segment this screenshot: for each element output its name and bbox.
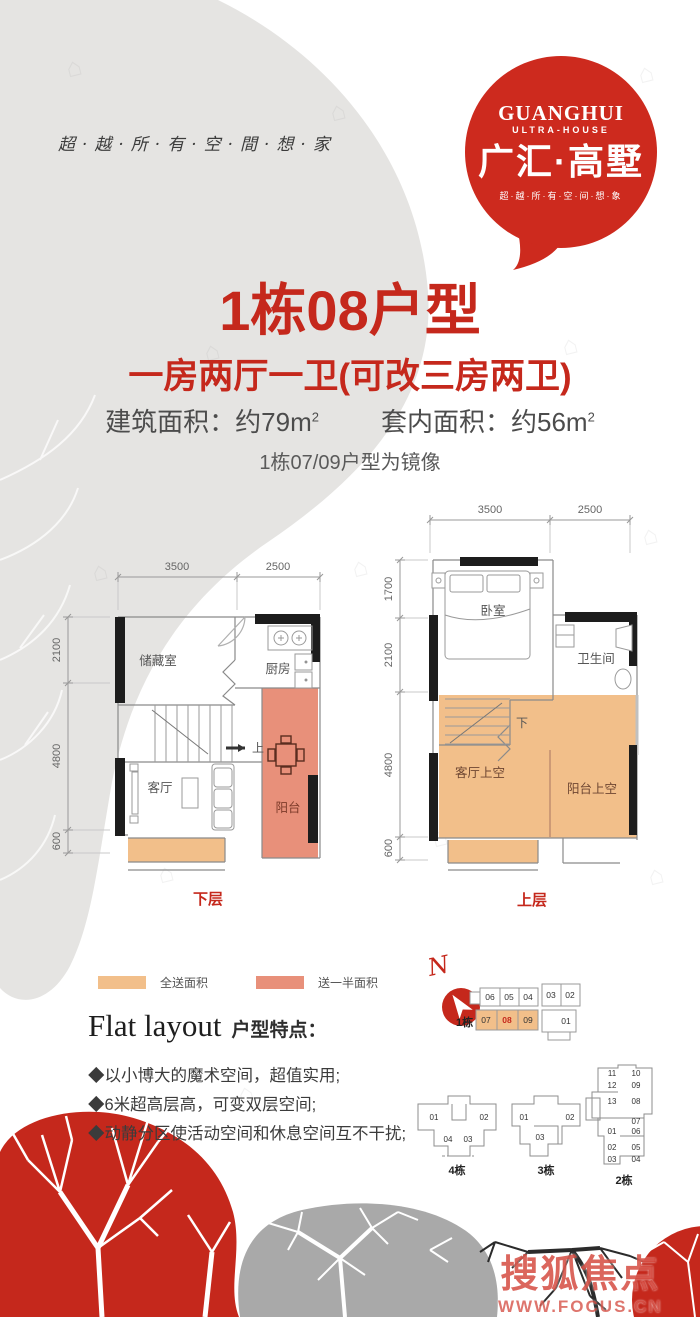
upper-dim-1700: 1700 (383, 577, 395, 601)
inner-area-sup: 2 (588, 409, 595, 424)
lower-floor-label: 下层 (193, 891, 223, 908)
lower-floor-plan: 3500 2500 2100 4800 600 (40, 540, 360, 920)
svg-text:01: 01 (520, 1113, 529, 1122)
room-label-balcony: 阳台 (275, 800, 300, 815)
svg-text:07: 07 (481, 1015, 491, 1025)
svg-text:03: 03 (546, 990, 556, 1000)
upper-dim-600: 600 (383, 839, 395, 857)
built-area-sup: 2 (312, 409, 319, 424)
building3-label: 3栋 (537, 1163, 554, 1177)
lower-dim-3500: 3500 (165, 561, 189, 573)
logo-tagline: 超·越·所·有·空·间·想·象 (500, 189, 623, 202)
room-label-kitchen: 厨房 (265, 661, 290, 676)
legend-half-swatch (256, 976, 304, 989)
svg-text:01: 01 (561, 1016, 571, 1026)
watermark-url: WWW.FOCUS.CN (498, 1298, 663, 1315)
legend-half-label: 送一半面积 (318, 974, 378, 991)
svg-text:13: 13 (608, 1097, 617, 1106)
stove-icon (268, 626, 312, 650)
svg-text:04: 04 (632, 1155, 641, 1164)
logo-cn-name: 广汇·高墅 (478, 141, 644, 183)
site-watermark: 搜狐焦点 WWW.FOCUS.CN (498, 1256, 663, 1315)
upper-floor-label: 上层 (517, 892, 547, 909)
feature-item: ◆6米超高层高，可变双层空间; (88, 1091, 418, 1115)
legend-full-label: 全送面积 (160, 974, 208, 991)
svg-text:06: 06 (485, 992, 495, 1002)
stairs-up-label: 上 (252, 741, 264, 755)
upper-dim-left-line (395, 557, 428, 863)
svg-text:02: 02 (566, 1113, 575, 1122)
building1-label: 1栋 (456, 1015, 473, 1029)
svg-text:09: 09 (523, 1015, 533, 1025)
building2-outline (586, 1065, 652, 1164)
lower-dim-2100: 2100 (51, 638, 63, 662)
svg-text:02: 02 (480, 1113, 489, 1122)
upper-floor-plan: 3500 2500 1700 2100 4800 600 (380, 495, 700, 925)
lower-dim-left-line (63, 614, 110, 856)
upper-dim-2500: 2500 (578, 504, 602, 516)
svg-text:03: 03 (608, 1155, 617, 1164)
svg-text:08: 08 (502, 1015, 512, 1025)
legend: 全送面积 送一半面积 (98, 974, 412, 991)
sofa-icon (130, 764, 234, 830)
svg-text:07: 07 (632, 1117, 641, 1126)
full-gift-strip (128, 838, 225, 862)
stairs-lower (152, 705, 245, 762)
logo-en-sub: ULTRA-HOUSE (512, 125, 610, 135)
brand-logo: GUANGHUI ULTRA-HOUSE 广汇·高墅 超·越·所·有·空·间·想… (455, 48, 670, 273)
building1-keyplan: 1栋 06 05 04 03 02 07 08 09 01 (448, 980, 638, 1044)
room-label-bathroom: 卫生间 (577, 652, 615, 666)
lower-dim-4800: 4800 (51, 744, 63, 768)
upper-full-gift-strip (448, 840, 538, 863)
feature-item: ◆以小博大的魔术空间，超值实用; (88, 1062, 418, 1086)
upper-dim-3500: 3500 (478, 504, 502, 516)
lower-dim-top-line (115, 572, 323, 610)
upper-dim-top-line (427, 515, 633, 553)
features-title-cn: 户型特点： (231, 1015, 326, 1042)
svg-text:02: 02 (608, 1143, 617, 1152)
upper-dim-2100: 2100 (383, 643, 395, 667)
features-title-en: Flat layout (88, 1008, 221, 1044)
fridge-icon (295, 654, 312, 688)
page-subtitle: 一房两厅一卫(可改三房两卫) (0, 348, 700, 399)
room-label-living: 客厅 (147, 780, 172, 795)
room-label-bedroom: 卧室 (480, 603, 505, 618)
building3-outline (512, 1096, 580, 1156)
stairs-down-label: 下 (516, 716, 528, 730)
toilet-icon (615, 669, 631, 689)
watermark-name: 搜狐焦点 (498, 1256, 663, 1294)
legend-full-swatch (98, 976, 146, 989)
svg-text:03: 03 (536, 1133, 545, 1142)
built-area: 建筑面积：约79m2 (105, 402, 319, 439)
svg-text:10: 10 (632, 1069, 641, 1078)
logo-en-name: GUANGHUI (498, 102, 624, 124)
building4-units: 01 02 04 03 (430, 1113, 489, 1144)
svg-text:01: 01 (430, 1113, 439, 1122)
svg-text:11: 11 (608, 1069, 617, 1078)
buildings-keyplans: 01 02 04 03 4栋 01 02 03 3栋 11 10 12 09 (408, 1062, 688, 1202)
lower-dim-600: 600 (51, 832, 63, 850)
svg-text:02: 02 (565, 990, 575, 1000)
side-slogan: 超·越·所·有·空·間·想·家 (58, 130, 388, 155)
svg-text:04: 04 (444, 1135, 453, 1144)
sink-icon (616, 625, 632, 651)
svg-text:06: 06 (632, 1127, 641, 1136)
area-row: 建筑面积：约79m2 套内面积：约56m2 (0, 402, 700, 439)
svg-text:03: 03 (464, 1135, 473, 1144)
page-title: 1栋08户型 (0, 266, 700, 347)
building2-label: 2栋 (615, 1173, 632, 1187)
building2-units: 11 10 12 09 13 08 07 01 06 02 05 03 04 (608, 1069, 641, 1164)
upper-dim-4800: 4800 (383, 753, 395, 777)
building4-label: 4栋 (448, 1163, 465, 1177)
svg-text:05: 05 (504, 992, 514, 1002)
room-label-storage: 储藏室 (139, 653, 177, 668)
svg-text:09: 09 (632, 1081, 641, 1090)
building3-units: 01 02 03 (520, 1113, 575, 1142)
poster-page: ⌂ ⌂ ⌂ ⌂ ⌂ ⌂ ⌂ ⌂ ⌂ ⌂ ⌂ ⌂ GUANGHUI ULTRA-H… (0, 0, 700, 1317)
svg-text:08: 08 (632, 1097, 641, 1106)
svg-text:12: 12 (608, 1081, 617, 1090)
lower-dim-2500: 2500 (266, 561, 290, 573)
room-label-balcony-void: 阳台上空 (567, 781, 617, 796)
features-title: Flat layout 户型特点： (88, 1008, 326, 1044)
svg-text:04: 04 (523, 992, 533, 1002)
logo-circle: GUANGHUI ULTRA-HOUSE 广汇·高墅 超·越·所·有·空·间·想… (465, 56, 657, 248)
feature-item: ◆动静分区使活动空间和休息空间互不干扰; (88, 1120, 418, 1144)
mirror-note: 1栋07/09户型为镜像 (0, 446, 700, 475)
room-label-living-void: 客厅上空 (455, 765, 505, 780)
svg-text:05: 05 (632, 1143, 641, 1152)
svg-text:01: 01 (608, 1127, 617, 1136)
inner-area: 套内面积：约56m2 (381, 402, 595, 439)
building4-outline (418, 1096, 496, 1156)
